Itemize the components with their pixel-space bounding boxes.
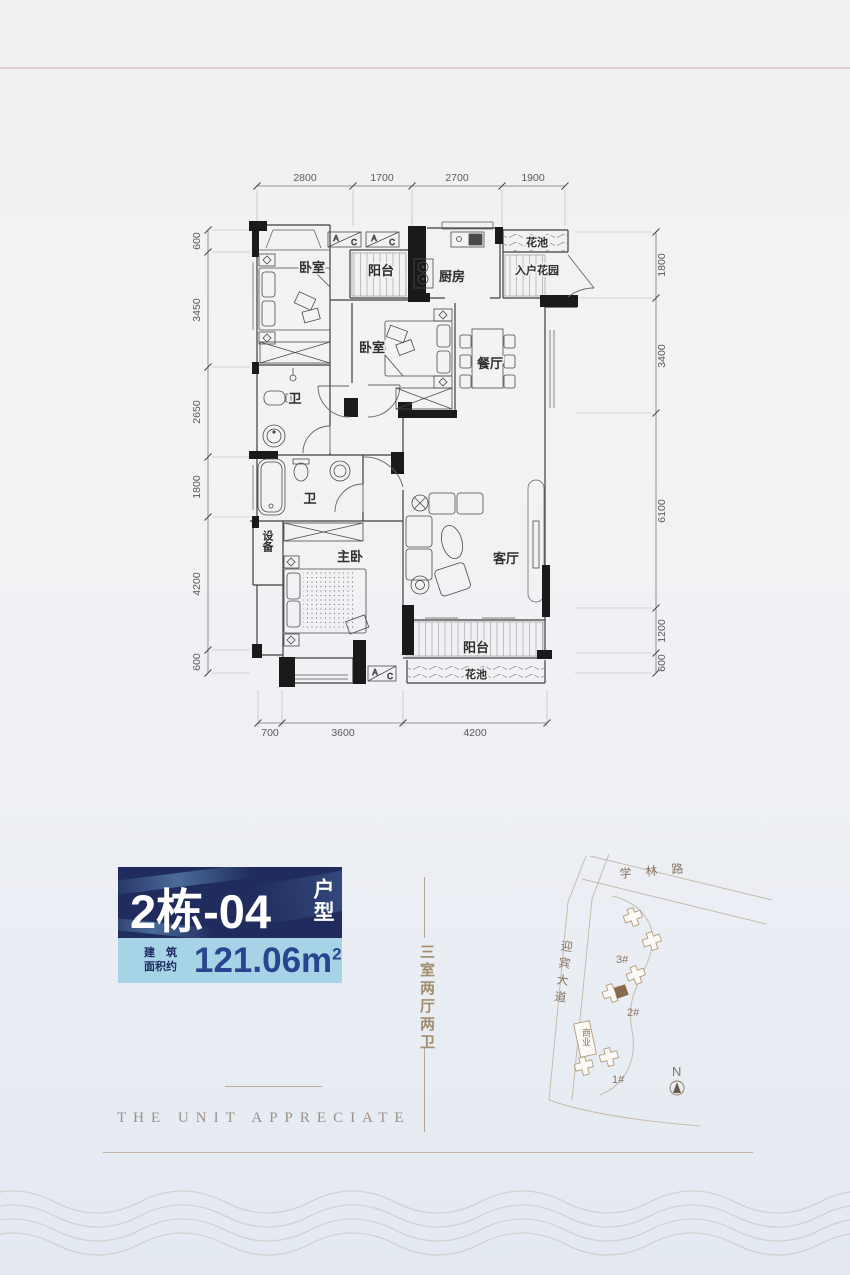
label-flowerbed-top: 花池 xyxy=(526,235,548,249)
label-master-bedroom: 主卧 xyxy=(337,549,363,564)
vertical-divider-bottom xyxy=(424,1048,425,1132)
area-prefix-line1: 建筑 xyxy=(144,947,188,961)
english-tagline: THE UNIT APPRECIATE xyxy=(117,1110,411,1127)
label-balcony-bottom: 阳台 xyxy=(463,640,489,655)
label-balcony-top: 阳台 xyxy=(368,263,394,278)
label-bedroom-mid: 卧室 xyxy=(359,340,385,355)
label-bedroom-top: 卧室 xyxy=(299,260,325,275)
floorplan-canvas: 2800 1700 2700 1900 600 3450 2650 1800 4… xyxy=(0,0,850,1275)
label-building-3: 3# xyxy=(616,954,629,966)
compass-needle-icon xyxy=(673,1082,681,1093)
dim-left-2: 3450 xyxy=(191,298,203,322)
ac-box-1: A C xyxy=(328,232,361,247)
layout-tagline-vertical: 三室两厅两卫 xyxy=(416,944,437,1052)
label-building-1: 1# xyxy=(612,1074,625,1086)
area-prefix-line2: 面积约 xyxy=(144,961,188,975)
unit-badge: 2栋-04 户型 xyxy=(118,867,342,938)
tagline-rule-long xyxy=(103,1152,753,1153)
area-badge: 建筑 面积约 121.06m2 xyxy=(118,938,342,983)
dim-top-1: 2800 xyxy=(293,172,317,184)
dim-left-3: 2650 xyxy=(191,400,203,424)
ac-letter-a: A xyxy=(371,234,377,243)
bed-bedroom-mid xyxy=(385,309,452,388)
ac-letter-c: C xyxy=(389,238,395,247)
wave-decoration xyxy=(0,1191,850,1255)
vertical-divider-top xyxy=(424,877,425,938)
floor-plan: 2800 1700 2700 1900 600 3450 2650 1800 4… xyxy=(191,172,668,739)
poster-page: 2800 1700 2700 1900 600 3450 2650 1800 4… xyxy=(0,0,850,1275)
site-map: 学林路 迎宾大道 3# 2# 1# 商业 N xyxy=(549,854,772,1126)
area-superscript: 2 xyxy=(332,944,341,963)
dim-left-5: 4200 xyxy=(191,572,203,596)
living-bay-window xyxy=(528,480,544,602)
label-commercial: 商业 xyxy=(581,1027,591,1046)
dim-right-2: 3400 xyxy=(656,344,668,368)
dim-top-3: 2700 xyxy=(445,172,469,184)
dim-top-2: 1700 xyxy=(370,172,394,184)
wardrobe-boxes xyxy=(260,342,452,541)
building-1-tower xyxy=(598,1046,620,1068)
label-building-2: 2# xyxy=(627,1007,640,1019)
unit-type-suffix: 户型 xyxy=(312,878,333,924)
ac-box-3: A C xyxy=(368,666,396,681)
map-buildings xyxy=(573,905,664,1077)
dim-left-1: 600 xyxy=(191,232,203,250)
map-roads xyxy=(549,854,772,1126)
building-3-tower xyxy=(640,929,663,952)
ac-letter-a: A xyxy=(372,668,378,677)
label-equipment: 设备 xyxy=(261,529,275,553)
map-labels: 学林路 迎宾大道 3# 2# 1# 商业 xyxy=(552,859,698,1086)
dim-right-4: 1200 xyxy=(656,619,668,643)
area-prefix: 建筑 面积约 xyxy=(144,947,188,975)
dim-bottom-2: 3600 xyxy=(331,727,355,739)
building-2-tower xyxy=(624,963,647,986)
label-bath-upper: 卫 xyxy=(288,391,301,406)
dim-right-1: 1800 xyxy=(656,253,668,277)
label-flowerbed-bottom: 花池 xyxy=(465,667,487,681)
label-dining: 餐厅 xyxy=(476,356,503,371)
label-road-left: 迎宾大道 xyxy=(552,939,574,1009)
unit-number: 2栋-04 xyxy=(130,873,271,938)
bath-lower-fixtures xyxy=(258,459,350,515)
dim-right-5: 600 xyxy=(656,654,668,672)
ac-letter-c: C xyxy=(351,238,357,247)
label-kitchen: 厨房 xyxy=(439,269,465,284)
ac-box-2: A C xyxy=(366,232,399,247)
compass: N xyxy=(670,1064,684,1095)
ac-letter-a: A xyxy=(333,234,339,243)
compass-north-label: N xyxy=(672,1064,681,1079)
dim-bottom-1: 700 xyxy=(261,727,279,739)
entry-door-swing xyxy=(568,255,594,297)
dim-left-4: 1800 xyxy=(191,475,203,499)
sofa-set xyxy=(406,493,539,597)
area-value: 121.06m2 xyxy=(194,943,342,978)
label-road-top: 学林路 xyxy=(619,859,698,881)
ac-letter-c: C xyxy=(387,672,393,681)
dim-bottom-3: 4200 xyxy=(463,727,487,739)
label-bath-lower: 卫 xyxy=(303,491,316,506)
label-living: 客厅 xyxy=(493,551,519,566)
bath-lower-door-swing xyxy=(335,484,363,512)
tv-cabinet xyxy=(533,521,539,568)
building-3-tower xyxy=(621,905,644,928)
tagline-rule-short xyxy=(225,1086,322,1087)
bath-upper-fixtures xyxy=(263,368,296,447)
dim-left-6: 600 xyxy=(191,653,203,671)
bath-upper-door-swing xyxy=(303,426,330,453)
hall-door-swing-right xyxy=(368,385,400,417)
dim-right-3: 6100 xyxy=(656,499,668,523)
label-entry-garden: 入户花园 xyxy=(515,263,559,277)
bed-master xyxy=(284,556,369,646)
area-number: 121.06m xyxy=(194,941,332,980)
dim-top-4: 1900 xyxy=(521,172,545,184)
